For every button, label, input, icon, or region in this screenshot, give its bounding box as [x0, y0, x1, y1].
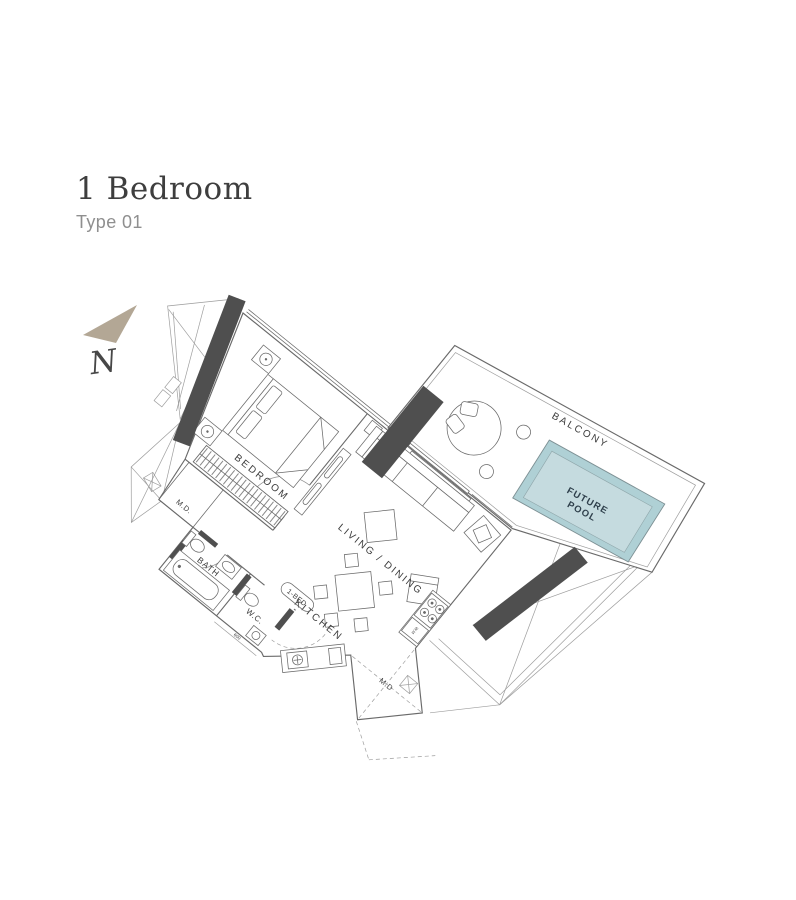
dining-chair	[379, 581, 393, 595]
floor-plan: FUTURE POOL BALCONY	[0, 0, 796, 900]
dining-table	[335, 572, 375, 612]
dining-chair	[344, 553, 358, 567]
page-root: { "header": { "title": "1 Bedroom", "sub…	[0, 0, 796, 900]
coffee-table	[364, 510, 397, 543]
dining-chair	[314, 585, 328, 599]
dining-chair	[354, 618, 368, 632]
